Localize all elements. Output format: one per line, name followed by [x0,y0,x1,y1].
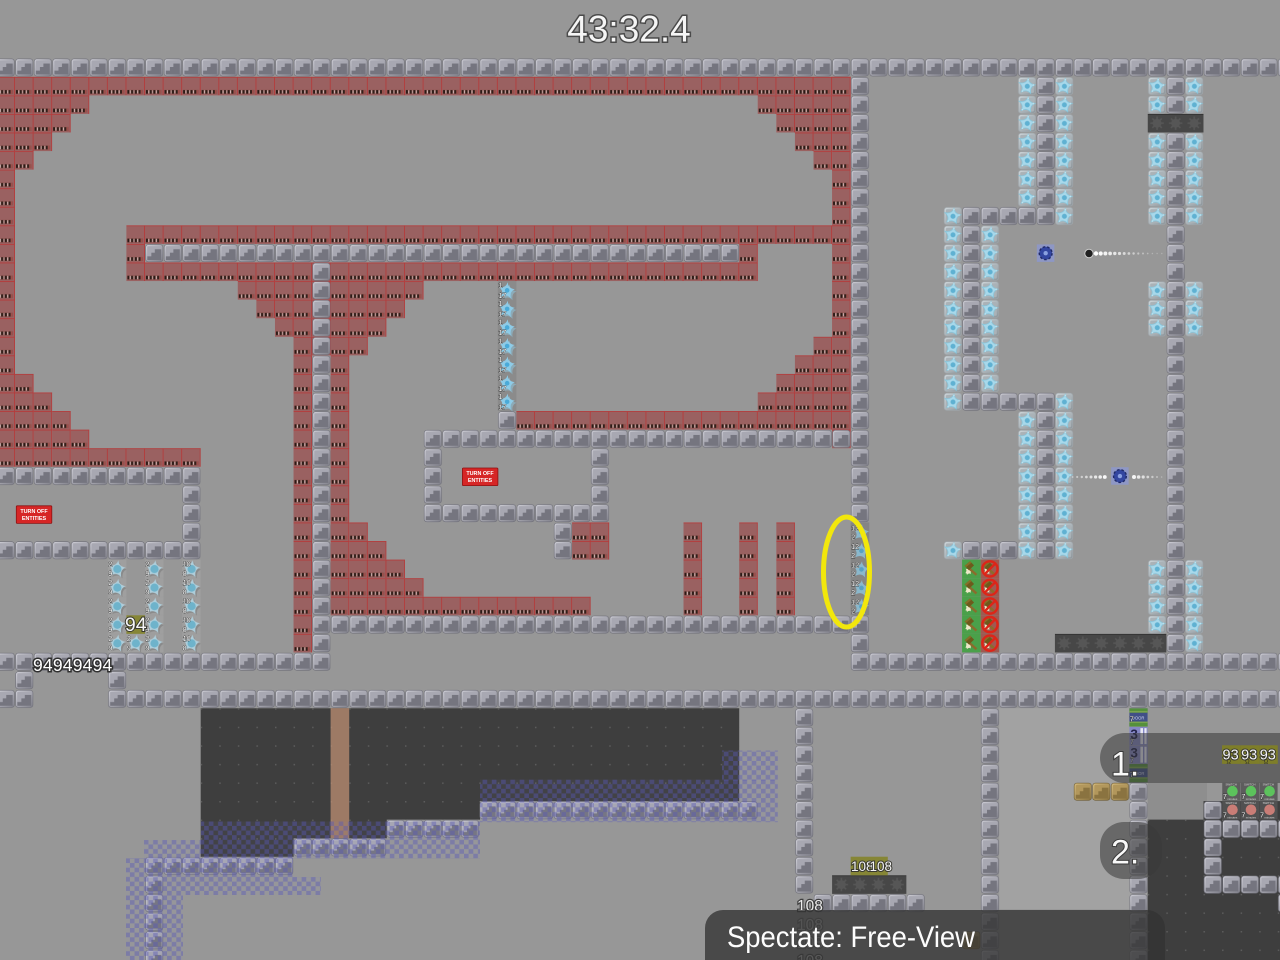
svg-text:1: 1 [498,392,502,401]
svg-text:2: 2 [108,597,112,606]
svg-text:2: 2 [127,634,131,643]
svg-text:ENTITIES: ENTITIES [22,516,47,522]
svg-text:8: 8 [183,588,187,597]
svg-text:TURN OFF: TURN OFF [20,509,48,515]
svg-text:2: 2 [145,578,149,587]
svg-text:Ω: Ω [1264,759,1269,765]
svg-text:1: 1 [498,355,502,364]
svg-text:2: 2 [108,634,112,643]
svg-text:9: 9 [108,569,112,578]
svg-text:2: 2 [108,615,112,624]
svg-text:2.: 2. [1111,834,1139,872]
svg-text:Spectate: Free-View: Spectate: Free-View [727,921,976,954]
svg-text:ENTITIES: ENTITIES [468,478,493,484]
svg-text:1: 1 [498,318,502,327]
svg-text:1: 1 [498,336,502,345]
svg-text:12: 12 [851,542,859,551]
svg-text:94: 94 [125,614,147,636]
svg-text:10: 10 [183,560,191,569]
svg-text:8: 8 [183,643,187,652]
svg-text:9: 9 [108,606,112,615]
svg-text:2: 2 [851,532,855,541]
svg-text:1: 1 [498,373,502,382]
svg-text:108: 108 [870,859,893,874]
svg-text:43:32.4: 43:32.4 [567,9,690,50]
svg-text:9: 9 [108,588,112,597]
svg-text:2: 2 [851,551,855,560]
svg-text:1.: 1. [1111,746,1139,784]
svg-text:2: 2 [851,570,855,579]
svg-text:1: 1 [498,299,502,308]
svg-text:10: 10 [183,597,191,606]
svg-text:9: 9 [145,588,149,597]
svg-text:8: 8 [183,606,187,615]
svg-text:17: 17 [498,402,506,411]
svg-text:9: 9 [145,643,149,652]
svg-text:12: 12 [851,579,859,588]
svg-text:8: 8 [183,569,187,578]
svg-text:2: 2 [145,560,149,569]
svg-text:2: 2 [108,578,112,587]
svg-text:9: 9 [127,643,131,652]
svg-text:2: 2 [851,607,855,616]
svg-text:12: 12 [851,561,859,570]
svg-text:8: 8 [183,625,187,634]
svg-text:9: 9 [145,569,149,578]
svg-text:9: 9 [108,625,112,634]
svg-text:10: 10 [183,615,191,624]
svg-text:10: 10 [183,578,191,587]
svg-text:10: 10 [183,634,191,643]
svg-text:Ω: Ω [1227,759,1232,765]
svg-text:94949494: 94949494 [33,655,113,675]
svg-text:2: 2 [851,588,855,597]
svg-text:2: 2 [145,597,149,606]
svg-text:12: 12 [851,598,859,607]
svg-text:9: 9 [108,643,112,652]
svg-text:1: 1 [498,281,502,290]
svg-text:TURN OFF: TURN OFF [466,471,494,477]
svg-text:2: 2 [108,560,112,569]
svg-text:Ω: Ω [1245,759,1250,765]
